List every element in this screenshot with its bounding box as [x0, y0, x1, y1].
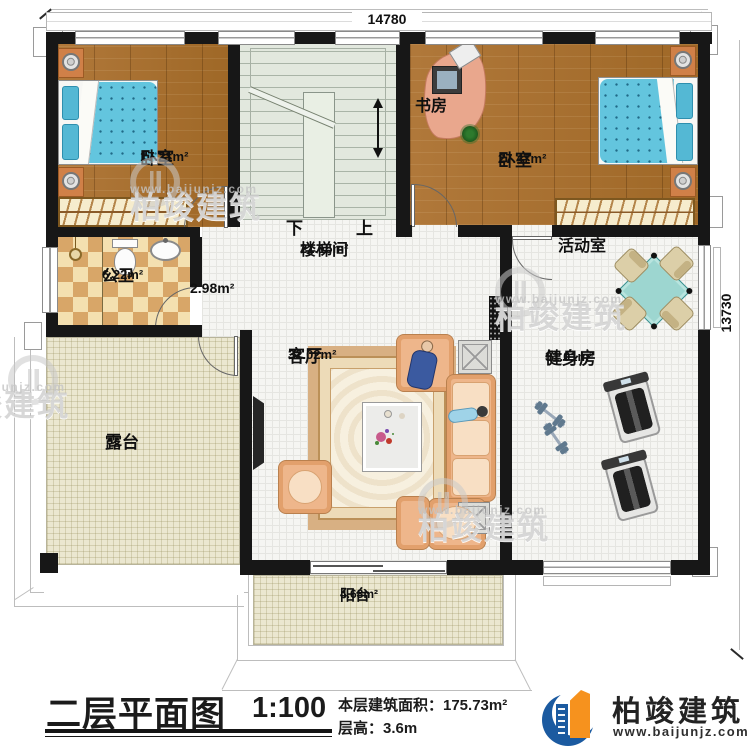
wardrobe — [58, 197, 188, 227]
activity-window — [698, 245, 711, 330]
room-area: 21.15m² — [300, 242, 348, 256]
brand-url: www.baijunjz.com — [613, 724, 750, 740]
shower-head-icon — [69, 248, 82, 261]
room-name: 书房 — [415, 98, 447, 116]
monitor-screen — [437, 71, 457, 89]
floor-plan-canvas: 卧室 17.21m² 书房 卧室 27.47m² 下 上 楼梯间 21.15m²… — [0, 0, 750, 751]
sink-faucet-icon — [163, 238, 168, 243]
room-area: 2.98m² — [190, 281, 234, 296]
terrace-rail-diagonal — [15, 587, 34, 600]
eave-line-top — [52, 9, 708, 10]
person-head — [476, 405, 488, 417]
bathroom-window — [42, 247, 58, 313]
lamp-icon — [674, 51, 692, 69]
study-window-small — [335, 31, 400, 45]
stair-up-text: 上 — [356, 220, 373, 239]
plan-scale: 1:100 — [252, 692, 332, 728]
terrace-rail-inner-v — [30, 337, 31, 593]
table-decor-icon — [384, 410, 392, 418]
dimension-right: 13730 — [718, 283, 734, 343]
wall-br2-south-3 — [552, 225, 698, 237]
person-body — [447, 407, 479, 424]
stair-up-arrow-icon — [373, 98, 383, 108]
wall-top-2 — [185, 32, 218, 44]
ledge-left-lower — [24, 322, 42, 350]
plan-title: 二层平面图 — [46, 686, 256, 728]
sliding-panel-right — [373, 570, 445, 572]
balcony-rail-inner-vl — [248, 575, 249, 645]
wall-right-lower — [698, 330, 710, 575]
bedroom1-window — [75, 31, 185, 45]
stair-down-arrow-icon — [373, 148, 383, 158]
terrace-corner-post — [40, 553, 58, 573]
activity-door-leaf — [512, 236, 552, 240]
wall-bedroom1-south — [46, 227, 200, 237]
wall-right-upper — [698, 32, 710, 245]
sofa-cushion — [452, 458, 490, 496]
sliding-panel-left — [313, 565, 383, 567]
table-flowers-icon — [376, 432, 386, 442]
bed-pillow — [62, 86, 79, 120]
person-body — [406, 349, 439, 392]
brand-logo-icon — [540, 686, 604, 748]
bed-pillow — [676, 83, 693, 119]
stairwell-window — [218, 31, 295, 45]
sofa-single-bottom — [396, 496, 430, 550]
roof-tick-bottomright — [730, 648, 744, 660]
wall-living-gym — [500, 225, 512, 575]
lamp-icon — [62, 53, 80, 71]
side-table-top — [458, 340, 492, 374]
eave-line-right — [739, 40, 740, 650]
stair-direction-line — [377, 102, 379, 152]
desk-monitor-icon — [432, 66, 462, 94]
stair-down-text: 下 — [286, 220, 303, 239]
balcony-rail-inner-vr — [503, 575, 504, 645]
wall-gym-south-2 — [671, 560, 710, 575]
wardrobe — [555, 198, 695, 227]
bedroom2-window — [595, 31, 680, 45]
room-area: 32.02m² — [288, 348, 336, 362]
brand-name: 柏竣建筑 — [612, 688, 750, 724]
wall-bedroom1-east — [228, 44, 240, 227]
plan-area-info: 本层建筑面积：175.73m² — [338, 694, 548, 716]
wall-top-3 — [295, 32, 335, 44]
lamp-icon — [62, 172, 80, 190]
title-underline-thin — [45, 736, 332, 737]
wall-gym-south-1 — [500, 560, 543, 575]
wall-stair-study — [396, 44, 410, 227]
tv — [253, 396, 264, 470]
study-window-large — [425, 31, 543, 45]
sink — [150, 240, 181, 261]
coffee-table — [362, 402, 422, 472]
study-door-leaf — [411, 184, 415, 227]
plant-icon — [462, 126, 478, 142]
wall-left-upper — [46, 32, 58, 247]
wall-br2-south-2 — [458, 225, 512, 237]
wall-top-5 — [543, 32, 595, 44]
balcony-floor — [253, 575, 503, 645]
room-name: 活动室 — [558, 238, 606, 256]
balcony-rail-inner-h — [248, 645, 504, 646]
balcony-rail-mid-vr — [515, 575, 516, 660]
wall-living-west — [240, 330, 252, 575]
bed-pillow — [62, 124, 79, 160]
lamp-icon — [674, 172, 692, 190]
title-underline-thick — [45, 729, 332, 733]
terrace-promenade — [44, 565, 244, 595]
plan-height-info: 层高：3.6m — [338, 717, 548, 739]
sofa-cushion — [436, 506, 476, 540]
room-area: 17.21m² — [140, 150, 188, 164]
ac-ledge-right — [708, 196, 723, 228]
toilet-tank — [112, 239, 138, 248]
terrace-door-leaf — [234, 336, 238, 376]
wall-living-south-1 — [240, 560, 310, 575]
room-area: 31.01m² — [545, 350, 593, 364]
terrace-floor — [46, 337, 240, 565]
room-area: 6.22m² — [102, 268, 143, 282]
balcony-sliding-door — [310, 561, 447, 574]
armchair-cushion — [288, 470, 322, 504]
terrace-rail-outer-h — [14, 606, 244, 607]
wall-br2-south-1 — [396, 225, 412, 237]
room-area: 4.68m² — [340, 588, 378, 601]
gym-window-sill — [543, 576, 671, 586]
balcony-rail-outer-h — [222, 690, 532, 691]
bed-pillow — [676, 123, 693, 161]
gym-window — [543, 561, 671, 574]
room-area: 27.47m² — [498, 152, 546, 166]
room-name: 露台 — [105, 434, 139, 453]
balcony-rail-mid-h — [237, 660, 516, 661]
wall-top-4 — [400, 32, 425, 44]
wall-bathroom-south — [46, 325, 202, 337]
dimension-top: 14780 — [352, 11, 422, 28]
logo-building-blue — [556, 704, 568, 738]
balcony-rail-diag-r — [515, 659, 531, 690]
terrace-rail-outer-v — [14, 337, 15, 606]
